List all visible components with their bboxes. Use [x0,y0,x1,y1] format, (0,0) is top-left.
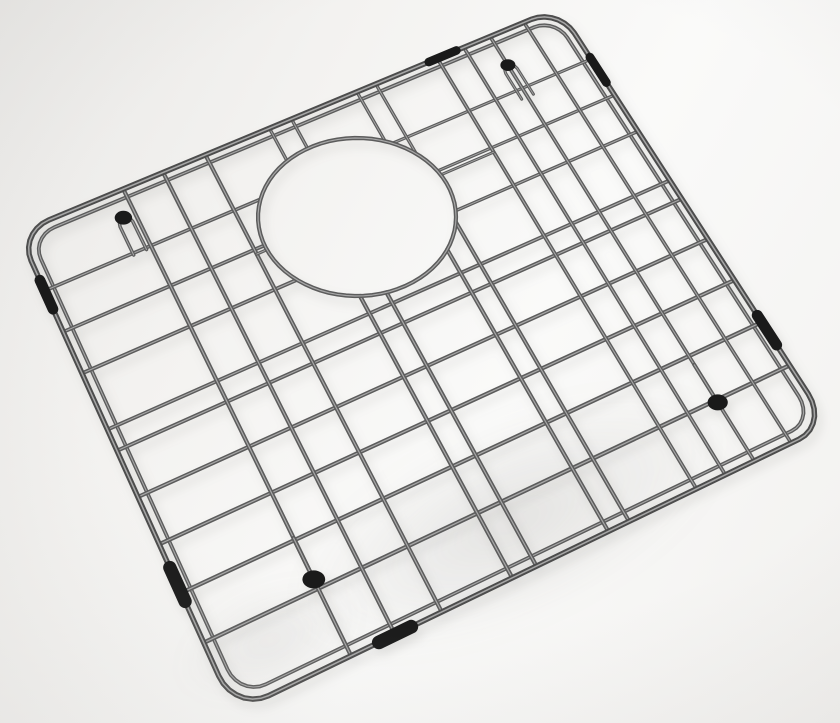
long-wire [182,322,761,592]
rubber-bumper [757,315,776,345]
long-wire [160,280,734,544]
cross-wire [464,48,725,474]
long-wire [438,95,614,171]
cross-wire [163,173,394,634]
foot-rubber-cap [302,570,325,588]
long-wire [204,366,789,643]
long-wire [456,132,638,211]
cross-wire [438,59,696,488]
ring-tab [441,152,494,175]
foot-wire [294,538,310,572]
sink-grid [0,0,840,723]
foot-rubber-cap [115,211,132,225]
product-photo [0,0,840,723]
foot-rubber-cap [708,394,728,410]
foot-wire [694,365,713,396]
cross-wire [357,92,385,141]
cross-wire [456,222,629,521]
drain-opening-ring [258,138,456,296]
cross-wire [524,23,791,443]
foot-rubber-cap [500,59,515,71]
long-wire [45,199,260,290]
